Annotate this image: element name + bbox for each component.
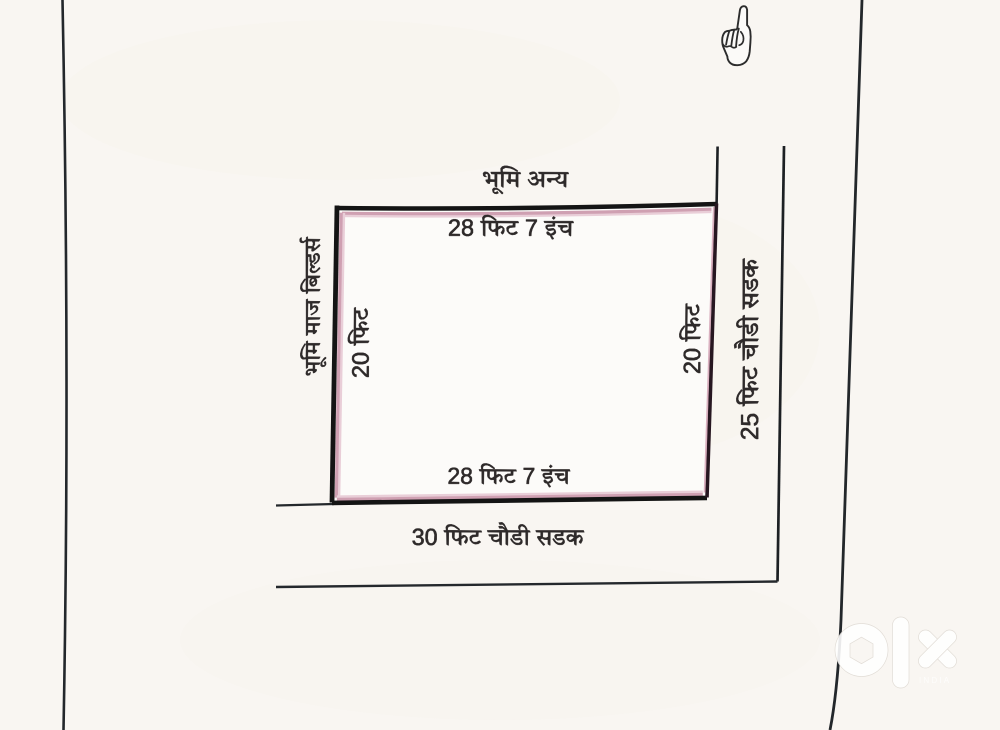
svg-text:INDIA: INDIA bbox=[919, 676, 951, 685]
